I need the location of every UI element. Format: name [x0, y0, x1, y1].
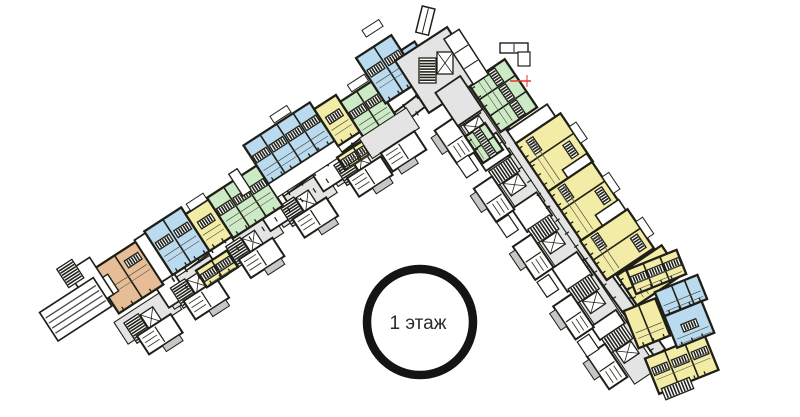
svg-text:1 этаж: 1 этаж — [390, 313, 447, 334]
